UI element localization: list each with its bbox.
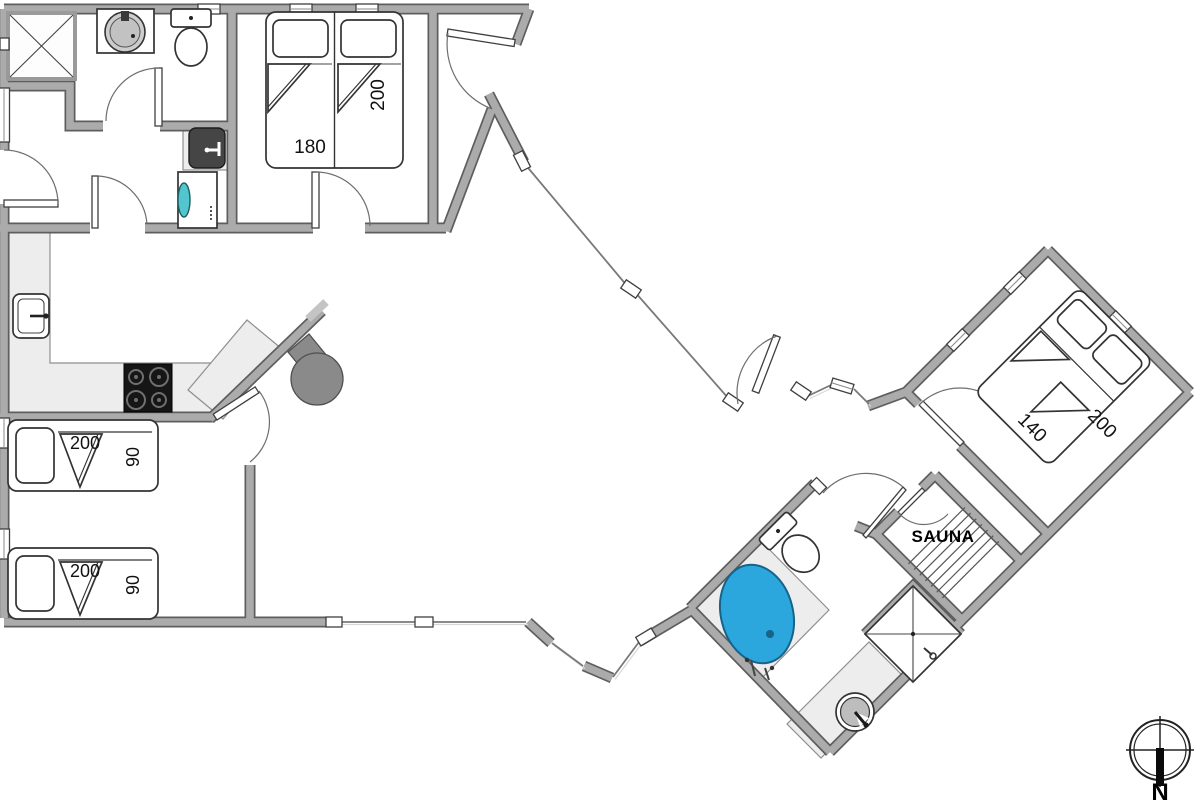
bunk-bottom-width-label: 90: [123, 575, 143, 595]
hall-kitchen-door: [92, 176, 147, 228]
bunk-top-length-label: 200: [70, 433, 100, 453]
window-icon: [1004, 272, 1027, 295]
window-icon: [830, 378, 854, 394]
window-icon: [791, 382, 812, 400]
double-bed-140: [974, 287, 1153, 466]
window-icon: [723, 393, 744, 411]
bedroom2: 140 200: [974, 287, 1153, 466]
window-icon: [947, 329, 970, 352]
window-icon: [621, 280, 642, 298]
exterior-door-west: [4, 150, 58, 207]
floor-plan: 180 200: [0, 0, 1200, 800]
annex-entry-door: [737, 335, 780, 404]
washing-machine: [178, 172, 217, 228]
bathroom1: [0, 9, 211, 79]
utility-sink: [189, 128, 225, 168]
bunk-top-width-label: 90: [123, 447, 143, 467]
toilet: [171, 9, 211, 66]
floor-plan-page: 180 200: [0, 0, 1200, 800]
bedroom1: 180 200: [266, 12, 403, 168]
kitchen-sink: [13, 294, 49, 338]
sauna-label: SAUNA: [912, 527, 975, 546]
compass-rose: N: [1126, 716, 1194, 800]
shower-valve: [0, 38, 9, 50]
bed1-length-label: 200: [368, 79, 389, 111]
window-icon: [513, 151, 530, 172]
window-icon: [0, 88, 10, 142]
entrance-door: [447, 29, 515, 109]
bed1-width-label: 180: [294, 137, 326, 158]
stove-hob: [124, 364, 172, 412]
compass-north-label: N: [1151, 779, 1168, 800]
washbasin2: [836, 693, 874, 731]
window-icon: [415, 617, 433, 627]
window-icon: [326, 617, 342, 627]
glass-wall-southeast: [524, 163, 869, 404]
sauna-door: [898, 488, 948, 524]
bathroom1-door: [106, 68, 162, 126]
bedroom1-door: [312, 172, 370, 228]
bunk-bottom-length-label: 200: [70, 561, 100, 581]
bunk-room: 200 90 200 90: [8, 420, 158, 619]
washbasin: [97, 9, 154, 53]
windows: [0, 4, 1131, 646]
window-icon: [636, 628, 657, 646]
